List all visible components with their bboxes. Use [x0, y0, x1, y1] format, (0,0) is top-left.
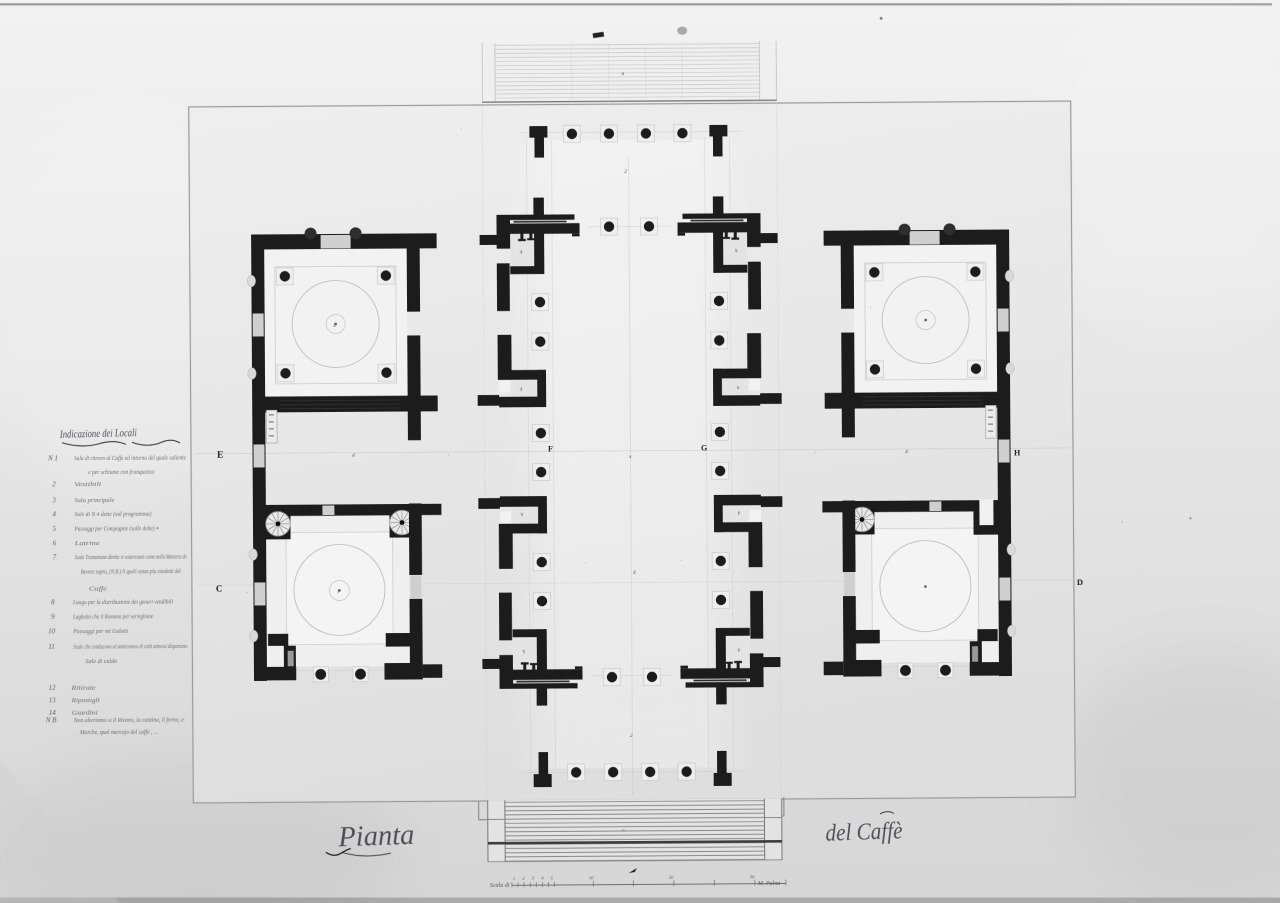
svg-text:Scale Tramontane dirette si so: Scale Tramontane dirette si sotterranei …: [75, 553, 187, 561]
svg-text:Luogo per la distribuzione dei: Luogo per la distribuzione dei generi ve…: [72, 599, 173, 607]
svg-text:Passaggi per mi Galetti: Passaggi per mi Galetti: [72, 628, 128, 635]
svg-text:.: .: [448, 451, 449, 457]
svg-text:10: 10: [48, 627, 56, 635]
svg-text:6: 6: [53, 539, 57, 547]
svg-text:Giardini: Giardini: [72, 710, 98, 717]
svg-text:Indicazione dei Locali: Indicazione dei Locali: [59, 427, 137, 441]
svg-text:2: 2: [630, 733, 633, 739]
svg-text:e per schiume con franquezza: e per schiume con franquezza: [88, 469, 155, 476]
svg-text:N B: N B: [45, 716, 57, 724]
svg-text:Caffe: Caffe: [89, 585, 107, 592]
svg-text:Pianta: Pianta: [337, 819, 415, 854]
svg-text:8: 8: [51, 598, 55, 606]
svg-text:Scale che conducono al sotterr: Scale che conducono al sotterraneo di co…: [73, 643, 188, 651]
svg-text:4: 4: [905, 448, 908, 455]
svg-text:.: .: [681, 557, 682, 563]
svg-text:20: 20: [669, 875, 674, 880]
svg-text:3: 3: [51, 496, 56, 504]
svg-text:F: F: [548, 445, 553, 454]
svg-text:G: G: [701, 443, 707, 452]
svg-text:Passaggi per Compagnie (sulle: Passaggi per Compagnie (sulle dette): [74, 525, 155, 533]
svg-text:Sala principale: Sala principale: [74, 497, 114, 504]
svg-text:Sale di caldo: Sale di caldo: [85, 658, 118, 665]
svg-text:5: 5: [52, 525, 56, 533]
svg-text:Sale di N 4 dette (sul program: Sale di N 4 dette (sul programma): [74, 511, 151, 519]
svg-text:10: 10: [589, 875, 594, 880]
svg-text:Sala di ritrovo al Caffe ed in: Sala di ritrovo al Caffe ed intorno del …: [74, 454, 186, 462]
svg-text:.: .: [247, 589, 248, 595]
svg-text:30: 30: [750, 874, 755, 879]
svg-text:Ritirate: Ritirate: [70, 685, 95, 692]
svg-text:2: 2: [624, 169, 627, 175]
svg-text:Laghetto che il Romano per ser: Laghetto che il Romano per serviglione: [72, 613, 153, 621]
svg-text:.: .: [585, 559, 586, 565]
svg-text:N 1: N 1: [47, 454, 58, 462]
svg-text:2: 2: [52, 480, 56, 488]
svg-text:13: 13: [49, 696, 57, 704]
svg-text:Ripostigli: Ripostigli: [71, 697, 100, 704]
svg-text:H: H: [1014, 448, 1021, 457]
svg-text:.: .: [461, 125, 462, 131]
svg-text:Marche, quel mercajo del caffe: Marche, quel mercajo del caffe , ...: [79, 729, 158, 737]
svg-text:Bevere sopra, (N.B.) li quali: Bevere sopra, (N.B.) li quali senza piu …: [81, 568, 181, 576]
svg-text:9: 9: [51, 613, 55, 621]
svg-text:x: x: [628, 454, 632, 460]
svg-text:,,: ,,: [621, 825, 625, 832]
svg-text:4: 4: [352, 452, 355, 459]
svg-text:.: .: [815, 449, 816, 455]
svg-text:E: E: [217, 451, 223, 461]
svg-text:C: C: [216, 584, 223, 594]
svg-text:7: 7: [53, 553, 57, 561]
svg-text:4: 4: [52, 510, 56, 518]
svg-text:.: .: [870, 303, 871, 309]
svg-text:del Caffè: del Caffè: [825, 818, 903, 847]
svg-text:Latrine: Latrine: [73, 540, 99, 547]
svg-text:Vestibili: Vestibili: [74, 481, 101, 488]
svg-text:M. Palmi: M. Palmi: [757, 881, 781, 887]
svg-text:1 2 3 4 5: 1 2 3 4 5: [513, 876, 556, 881]
svg-text:1: 1: [337, 590, 340, 595]
svg-text:Scala di: Scala di: [490, 883, 510, 889]
svg-text:n: n: [621, 71, 624, 77]
svg-text:Non alteriamo si il Rivano, la: Non alteriamo si il Rivano, la cantina, …: [73, 716, 184, 724]
svg-text:D: D: [1077, 577, 1083, 587]
svg-text:4: 4: [633, 569, 636, 576]
svg-text:11: 11: [48, 643, 55, 651]
svg-text:12: 12: [49, 684, 57, 692]
